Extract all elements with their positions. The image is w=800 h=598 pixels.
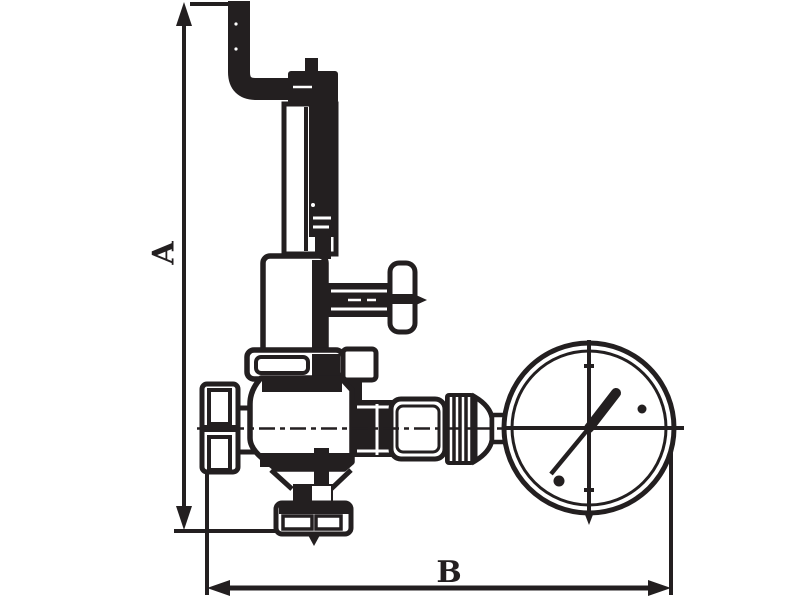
flange-dark-section (312, 354, 340, 376)
vent-pipe-weld-dot-2 (234, 47, 237, 50)
dimension-a-arrow-up (176, 2, 192, 26)
gauge-bottom-pointer (584, 512, 594, 525)
dimension-a-arrow-down (176, 506, 192, 530)
dimension-b-label: B (436, 555, 461, 590)
pressure-gauge (502, 340, 684, 525)
vent-pipe-tube (239, 1, 292, 89)
drain-bottom-tick (308, 535, 320, 546)
gauge-dial-dot-upper (638, 405, 647, 414)
drain-nut-facet-right (316, 516, 341, 529)
drain-taper-left (271, 470, 292, 489)
bonnet (263, 256, 326, 357)
drain-nut-top-band (279, 505, 349, 514)
vent-pipe (234, 1, 292, 89)
vent-cap (288, 58, 338, 104)
drain-fitting (271, 470, 351, 546)
flange-slot (256, 357, 308, 373)
branch-block (343, 349, 376, 380)
inlet-cap-panel-bottom (209, 437, 230, 470)
valve-technical-drawing: A B (0, 0, 800, 598)
bonnet-shadow-strip (312, 260, 324, 354)
inlet-cap-panel-top (209, 390, 230, 424)
dimension-b-arrow-left (207, 580, 230, 596)
drain-nut-facet-left (283, 516, 312, 529)
spring-housing (284, 104, 336, 259)
vent-pipe-weld-dot-1 (234, 22, 237, 25)
dimension-b-arrow-right (648, 580, 671, 596)
body-bottom-band (260, 453, 350, 467)
rod-dot (311, 203, 315, 207)
drain-taper-right (331, 470, 351, 489)
gauge-dial-dot-lower (554, 476, 565, 487)
drain-upper-square (312, 486, 331, 502)
dimension-a-label: A (147, 241, 182, 266)
body-top-band (262, 379, 342, 392)
drawing-canvas: A B (0, 0, 800, 598)
side-tap (326, 263, 427, 332)
side-tap-tip (416, 295, 427, 305)
